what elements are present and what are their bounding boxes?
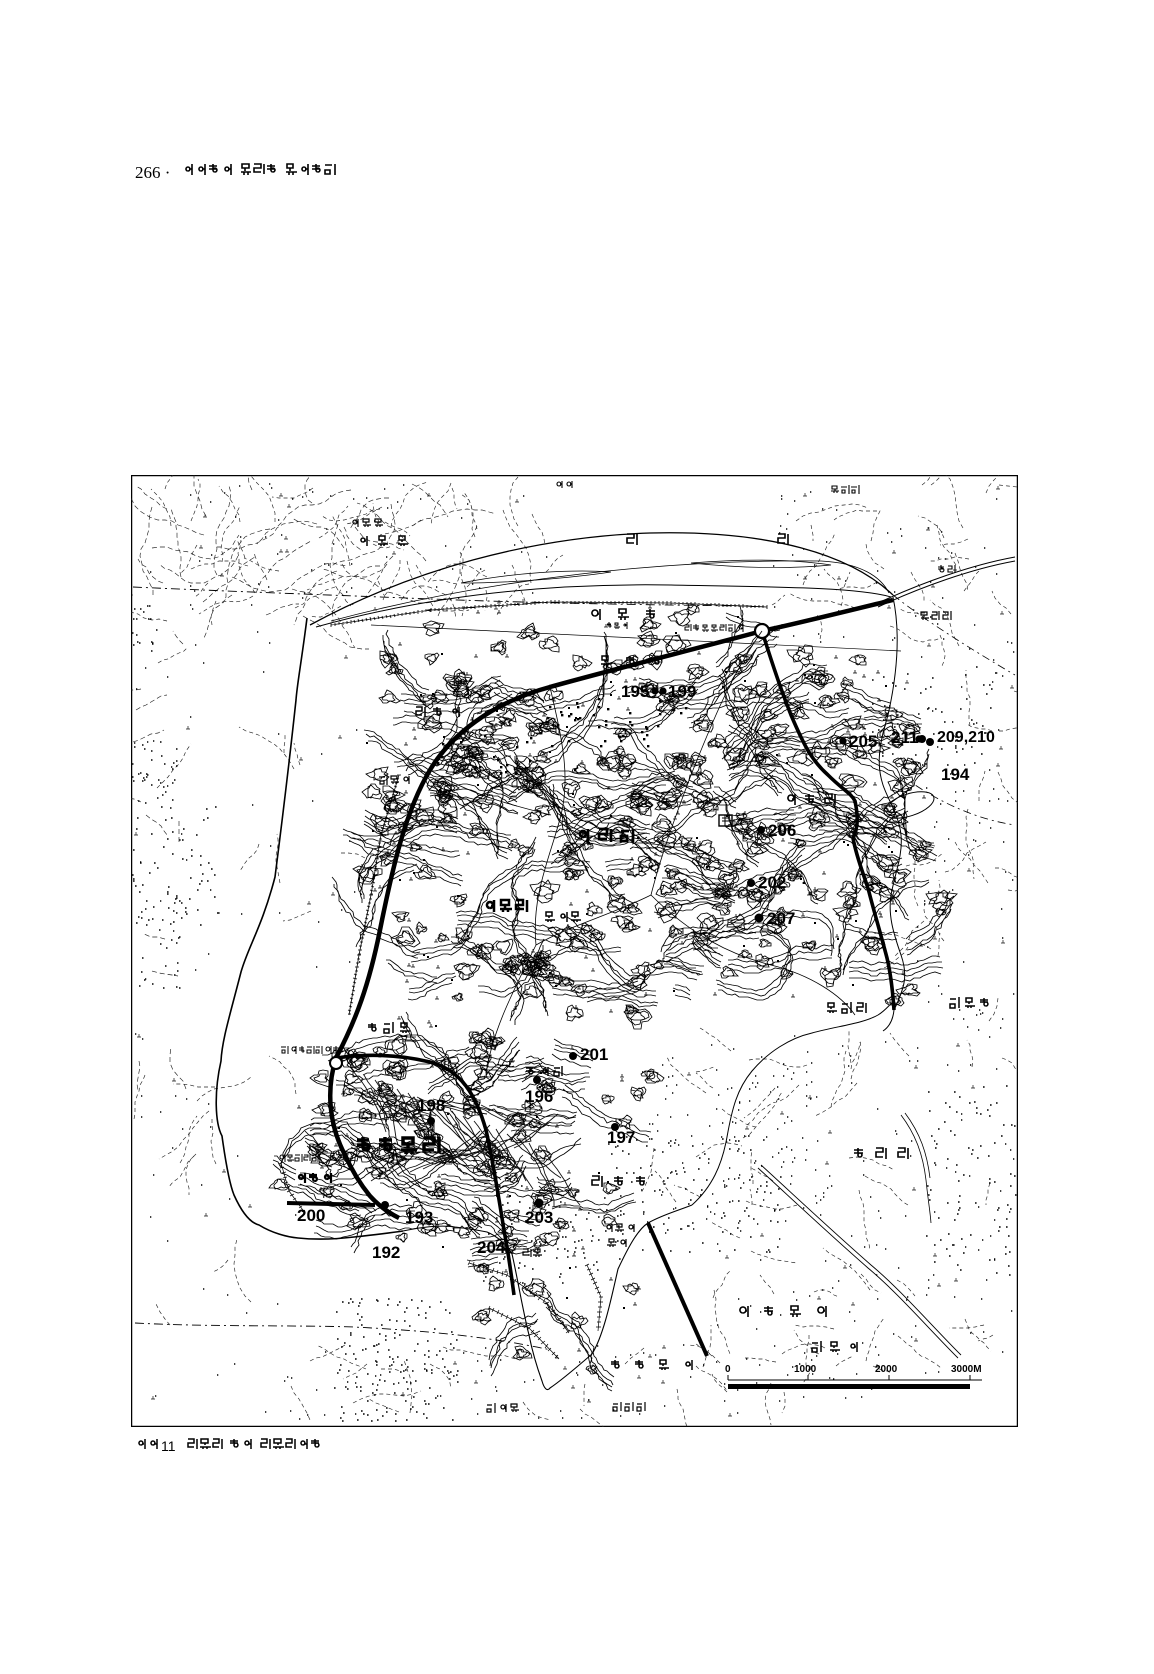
svg-text:207: 207 [767,909,795,928]
svg-text:196: 196 [525,1087,553,1106]
svg-text:209,210: 209,210 [937,729,995,746]
svg-text:199: 199 [668,682,696,701]
svg-text:195: 195 [621,682,649,701]
svg-text:197: 197 [607,1128,635,1147]
svg-text:0: 0 [725,1364,731,1375]
svg-text:204: 204 [477,1238,506,1257]
svg-text:193: 193 [405,1208,433,1227]
svg-text:203: 203 [525,1208,553,1227]
svg-text:11: 11 [161,1438,176,1454]
svg-text:198: 198 [417,1096,445,1115]
svg-text:194: 194 [941,765,970,784]
svg-text:2000: 2000 [875,1364,898,1375]
svg-text:205: 205 [849,732,877,751]
svg-text:192: 192 [372,1243,400,1262]
svg-text:3000M: 3000M [951,1364,982,1375]
svg-text:201: 201 [580,1045,608,1064]
svg-text:266 ·: 266 · [135,163,170,182]
svg-text:200: 200 [297,1206,325,1225]
svg-text:206: 206 [768,821,796,840]
svg-text:211: 211 [891,728,918,747]
svg-text:1000: 1000 [794,1364,817,1375]
svg-text:202: 202 [758,873,786,892]
